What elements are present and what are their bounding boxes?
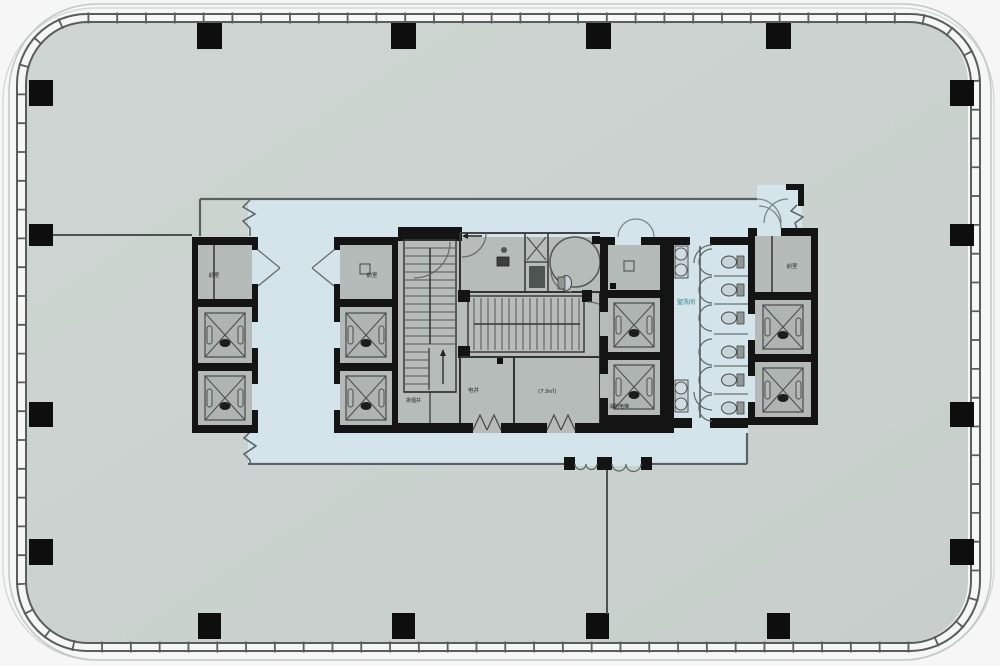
column [29,224,53,246]
column [767,613,790,639]
lobby-label: 前室 [786,262,798,270]
column [950,402,974,427]
corridor-north [248,199,757,237]
wash-basin [675,382,687,394]
restroom-label: 盥洗间 [677,298,695,306]
column [29,80,53,106]
fire-elevator-label: 消防电梯 [609,403,629,410]
corridor-south [248,430,747,466]
column [950,539,974,565]
floor-plan-page: 前室 前室 [0,0,1000,666]
column [586,613,609,639]
column [586,23,611,49]
elevator-cabin [763,305,803,349]
bank-midwest-lobby [340,245,392,299]
elevator-cabin [346,376,386,420]
column [198,613,221,639]
elevator-cabin [614,303,654,347]
smoke-shaft-label: 排烟井 [406,397,421,404]
elevator-bank-east: 前室 [748,206,818,425]
elec-shaft-label: 电井 [468,386,480,394]
elevator-cabin [205,376,245,420]
duct [529,266,545,288]
elevator-cabin [205,313,245,357]
wash-basin [675,248,687,260]
elevator-cabin [763,368,803,412]
column [392,613,415,639]
bank-east-lobby [755,236,811,292]
column [197,23,222,49]
wash-basin [675,264,687,276]
mid-east-lift-column: 消防电梯 [600,219,674,433]
column [391,23,416,49]
wash-basin [675,398,687,410]
core-middle-block: 排烟井 [398,219,674,433]
column [950,224,974,246]
column [29,402,53,427]
corridor-west-lift-lobby [256,237,334,433]
bank-west-lobby [198,245,252,299]
elevator-cabin [346,313,386,357]
mop-sink [497,257,509,266]
floor-plan-drawing: 前室 前室 [0,0,1000,666]
column [766,23,791,49]
room-area-label: (7.9㎡) [538,387,557,395]
fire-elevator-cabin [614,365,654,409]
column [950,80,974,106]
lobby-label: 前室 [366,271,378,279]
lobby-label: 前室 [208,271,220,279]
column [29,539,53,565]
